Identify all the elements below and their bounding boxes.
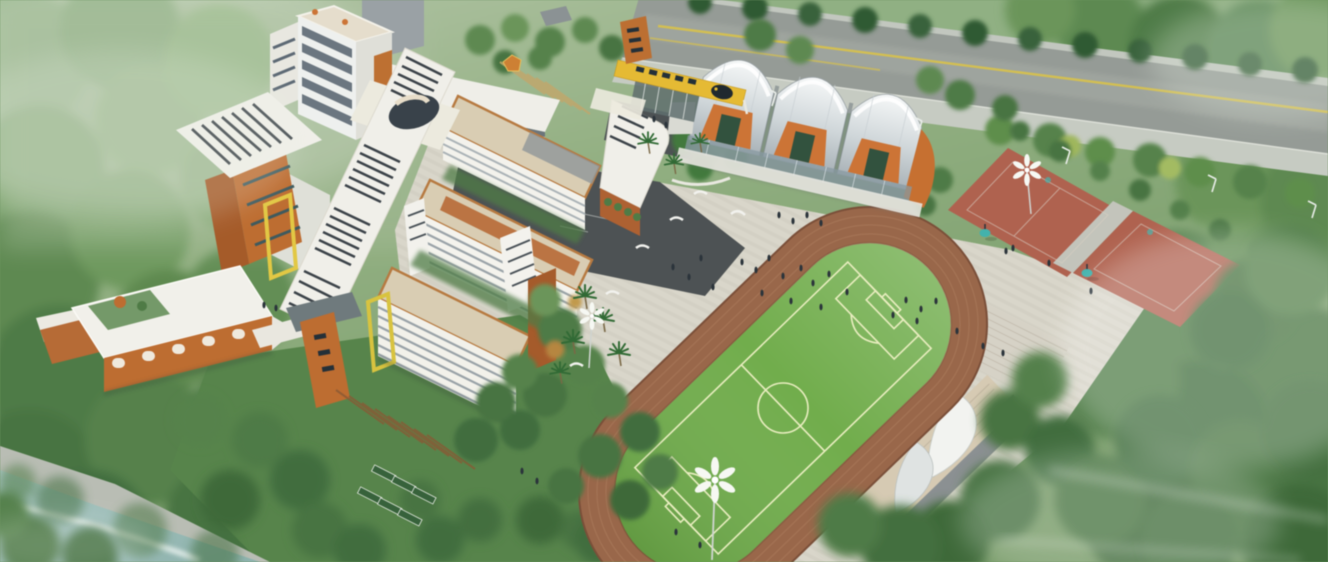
campus-aerial-rendering xyxy=(0,0,1328,562)
rendering-canvas xyxy=(0,0,1328,562)
